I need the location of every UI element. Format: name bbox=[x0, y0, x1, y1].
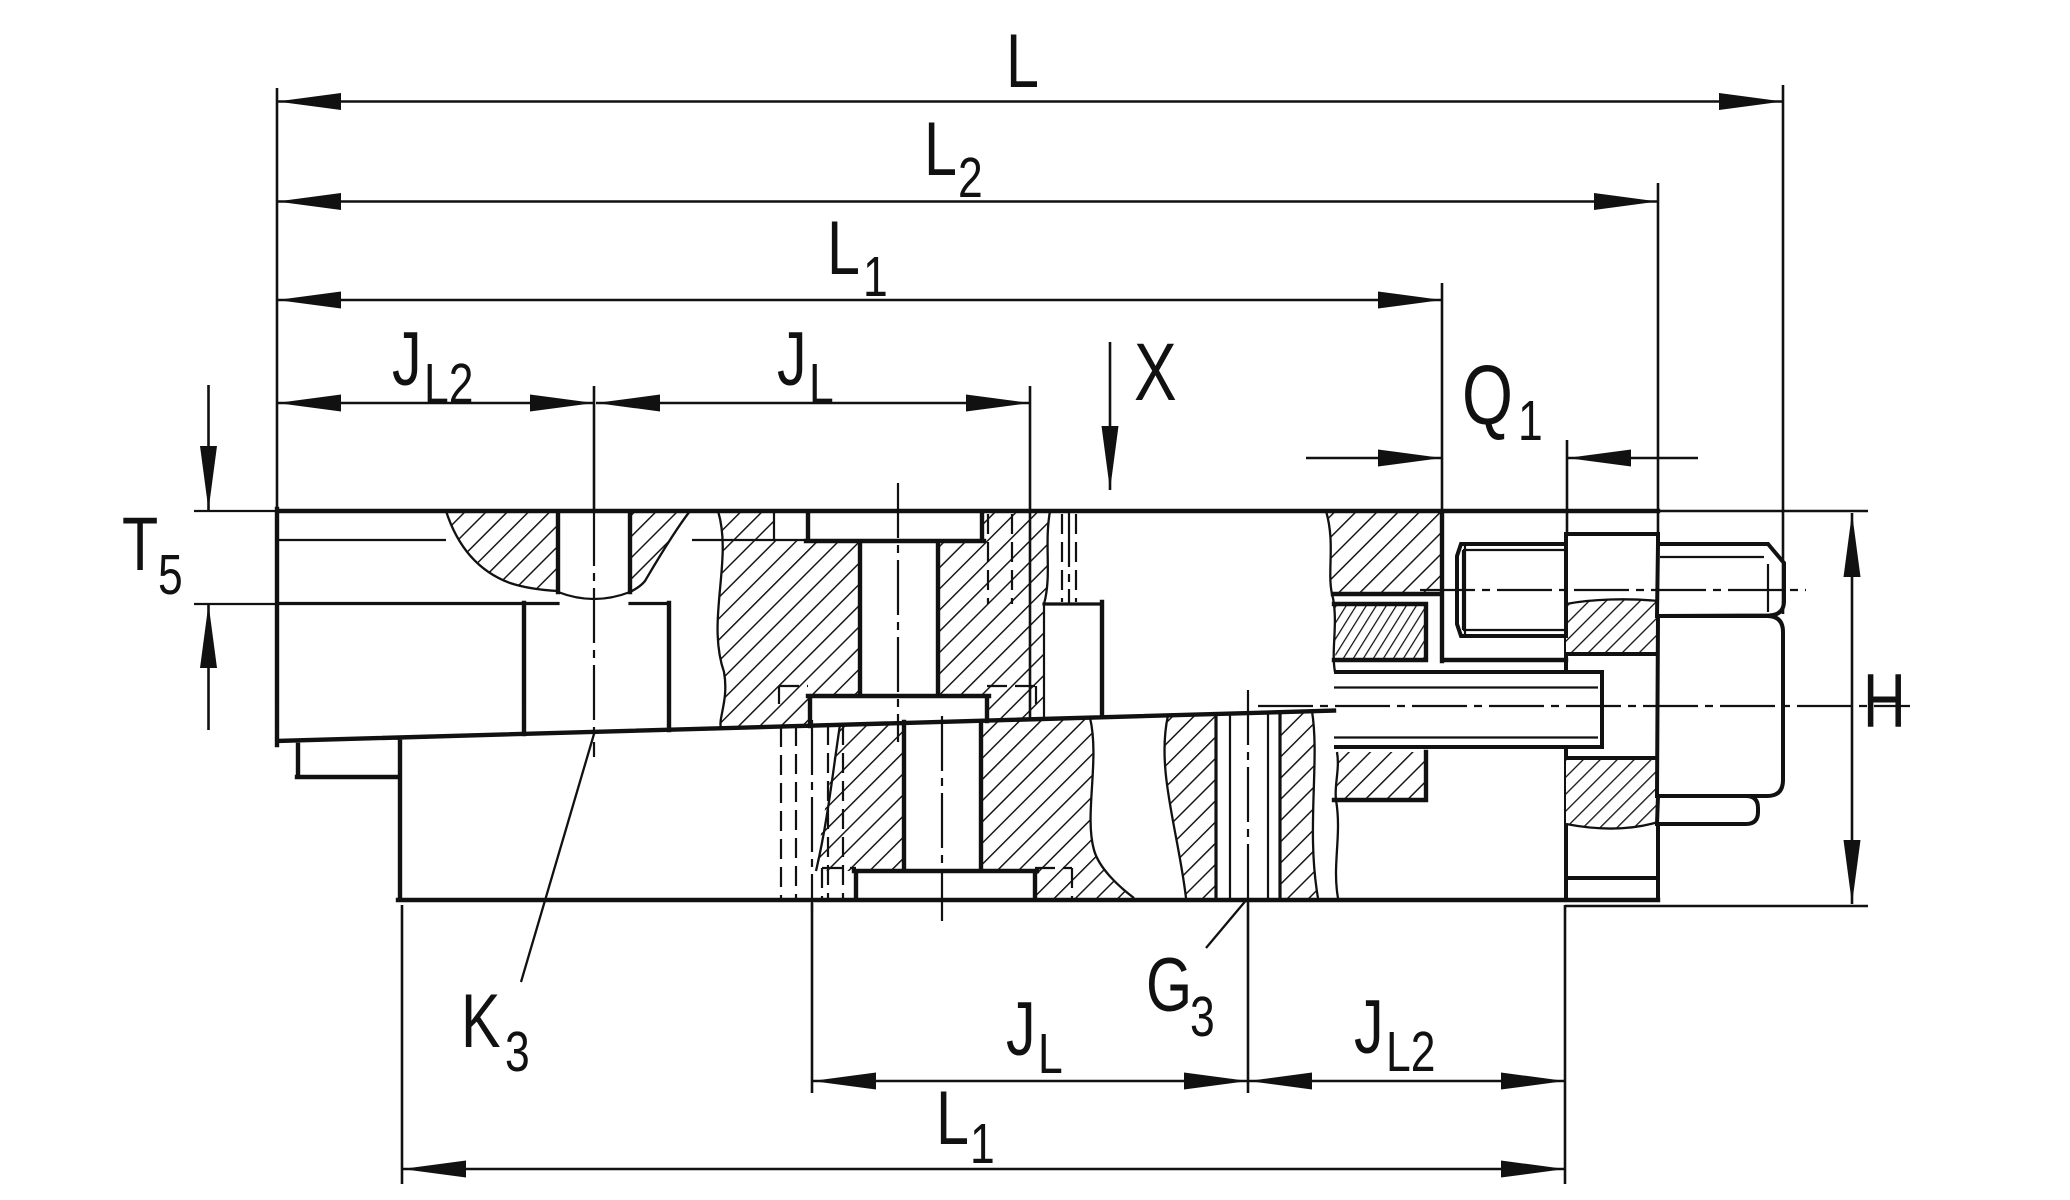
svg-text:3: 3 bbox=[1190, 985, 1215, 1049]
svg-text:L: L bbox=[924, 107, 957, 192]
svg-text:J: J bbox=[1354, 985, 1384, 1070]
svg-text:G: G bbox=[1146, 943, 1192, 1028]
svg-text:K: K bbox=[461, 979, 501, 1064]
svg-text:5: 5 bbox=[158, 543, 183, 607]
svg-text:L: L bbox=[827, 206, 860, 291]
svg-text:1: 1 bbox=[863, 245, 888, 309]
svg-text:1: 1 bbox=[1518, 389, 1543, 453]
svg-text:H: H bbox=[1863, 659, 1906, 744]
svg-text:L: L bbox=[809, 352, 834, 416]
svg-text:L2: L2 bbox=[1386, 1020, 1435, 1084]
svg-text:J: J bbox=[392, 317, 422, 402]
svg-text:L: L bbox=[1006, 19, 1039, 104]
svg-text:L2: L2 bbox=[424, 352, 473, 416]
svg-text:1: 1 bbox=[970, 1112, 995, 1176]
svg-text:J: J bbox=[777, 317, 807, 402]
svg-text:J: J bbox=[1006, 987, 1036, 1072]
svg-text:2: 2 bbox=[958, 146, 983, 210]
svg-text:Q: Q bbox=[1462, 348, 1513, 442]
svg-text:3: 3 bbox=[505, 1020, 530, 1084]
svg-text:X: X bbox=[1134, 325, 1177, 418]
svg-text:T: T bbox=[122, 502, 158, 587]
svg-text:L: L bbox=[936, 1076, 969, 1161]
svg-text:L: L bbox=[1038, 1022, 1063, 1086]
